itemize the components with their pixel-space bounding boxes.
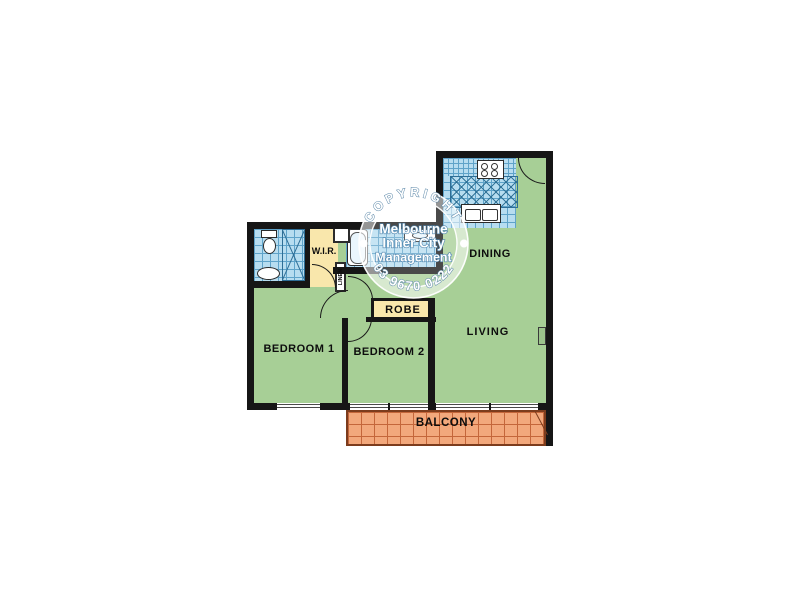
- watermark-dot-right: [460, 240, 468, 248]
- watermark-dot-left: [360, 240, 368, 248]
- room-label-linen: LINEN: [338, 269, 344, 286]
- toilet-bowl: [263, 238, 276, 254]
- wall: [247, 281, 310, 288]
- watermark-line1: Melbourne: [379, 222, 448, 237]
- vanity-basin: [257, 267, 280, 280]
- burner-icon: [491, 170, 498, 177]
- wall: [546, 410, 553, 446]
- room-label-balcony: BALCONY: [416, 417, 476, 429]
- window-mullion: [388, 403, 390, 410]
- wall: [320, 403, 350, 410]
- shower-fixture: [282, 229, 305, 281]
- window-mullion: [489, 403, 491, 410]
- burner-icon: [481, 163, 488, 170]
- room-label-dining: DINING: [469, 248, 511, 260]
- room-label-robe: ROBE: [385, 304, 421, 316]
- room-label-bedroom1: BEDROOM 1: [263, 343, 334, 355]
- wall: [366, 317, 436, 322]
- toilet-fixture: [261, 230, 277, 238]
- burner-icon: [491, 163, 498, 170]
- sliding-door: [436, 403, 538, 410]
- watermark-line2: Inner City: [382, 236, 445, 251]
- wall: [538, 403, 553, 410]
- cooktop-fixture: [477, 160, 504, 179]
- copyright-watermark: COPYRIGHT 03 9670 0222 Melbourne Inner C…: [356, 186, 471, 301]
- wall: [428, 298, 435, 403]
- room-label-bedroom2: BEDROOM 2: [353, 346, 424, 358]
- sink-bowl: [482, 209, 498, 221]
- wall: [305, 229, 310, 281]
- window: [277, 403, 320, 410]
- wall-niche: [538, 327, 546, 345]
- wall: [247, 403, 277, 410]
- wall: [436, 151, 553, 158]
- room-label-wir: W.I.R.: [312, 246, 337, 256]
- floor-plan: BEDROOM 1 BEDROOM 2 LIVING DINING W.I.R.…: [0, 0, 800, 600]
- burner-icon: [481, 170, 488, 177]
- wall: [546, 151, 553, 410]
- room-label-living: LIVING: [467, 326, 510, 338]
- watermark-line3: Management: [375, 251, 452, 265]
- wall: [428, 403, 436, 410]
- wall: [247, 222, 254, 410]
